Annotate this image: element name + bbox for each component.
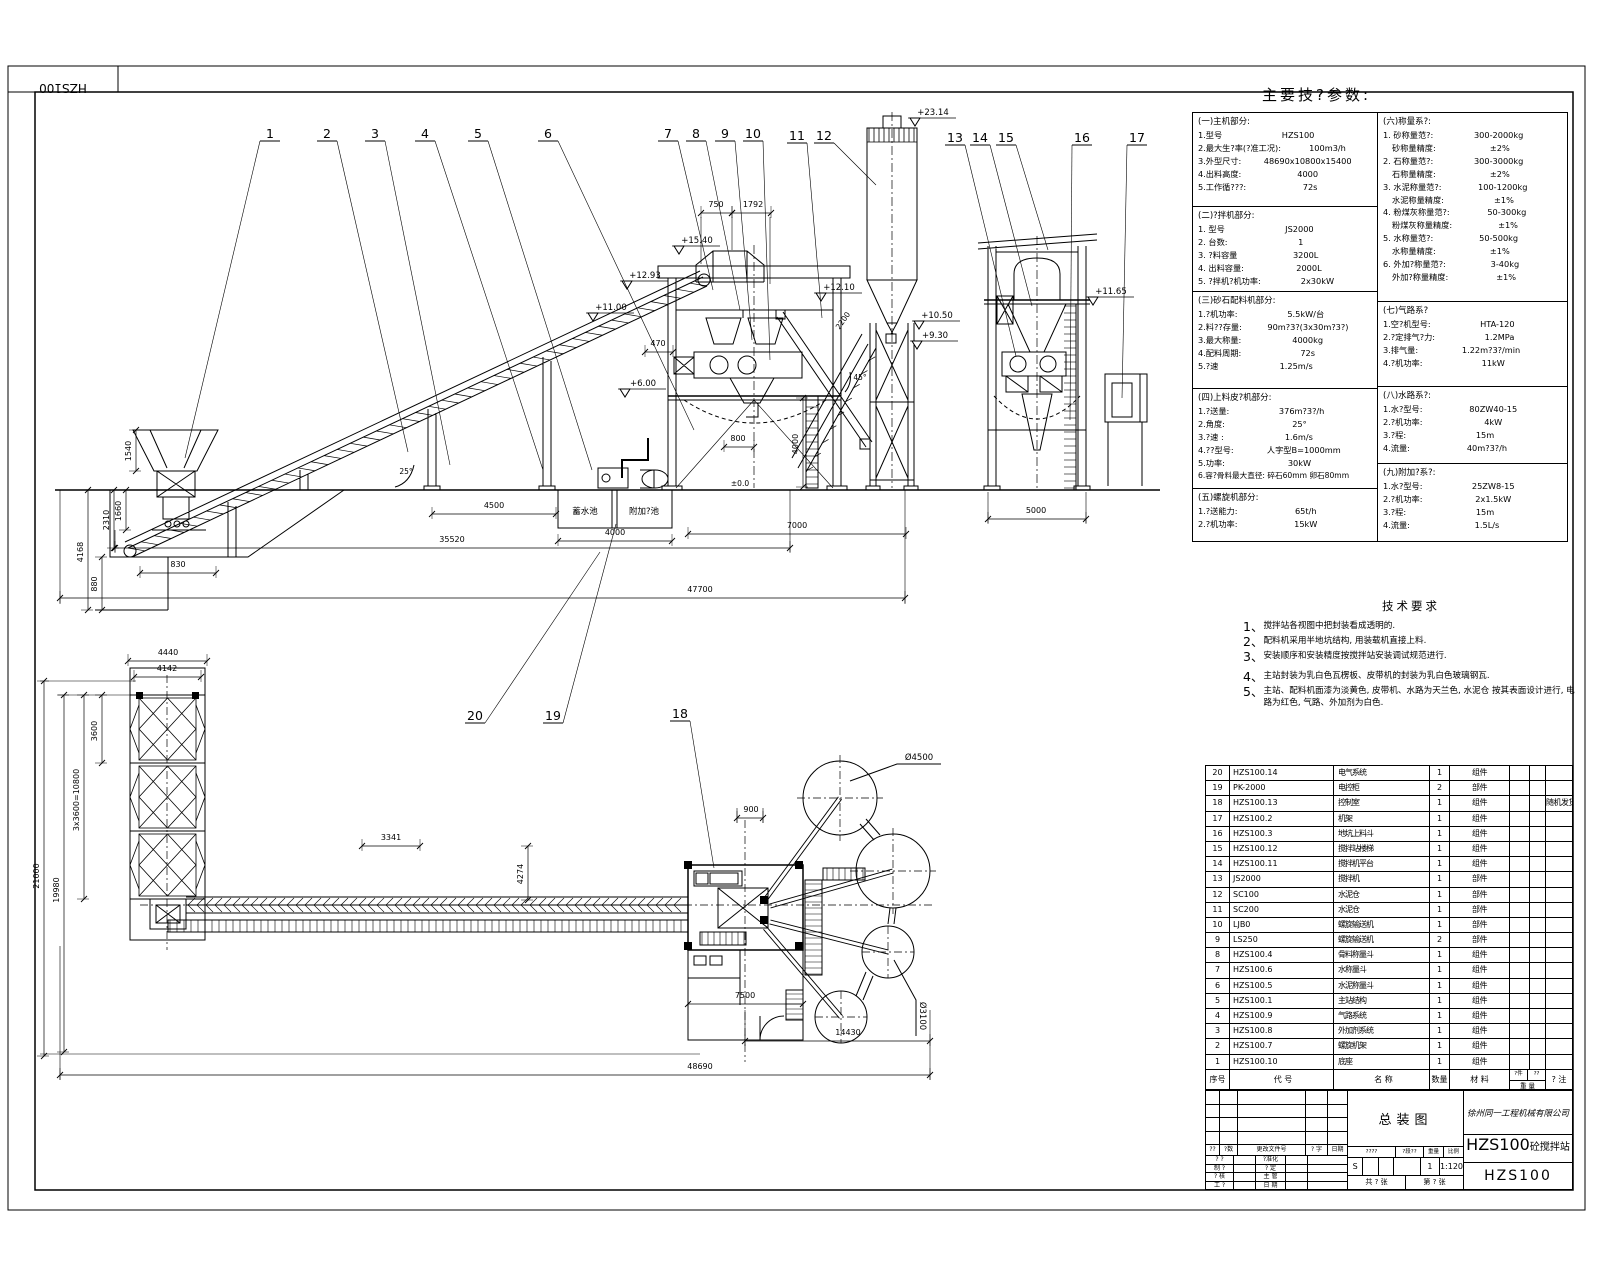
param-value: 65t/h [1237, 505, 1374, 518]
param-value: 100-1200kg [1441, 181, 1564, 194]
bom-cell-code: HZS100.3 [1230, 827, 1334, 841]
param-value: 15m [1406, 506, 1564, 519]
svg-text:4142: 4142 [157, 664, 177, 673]
bom-cell-code: HZS100.14 [1230, 766, 1334, 780]
param-label: 3. ?料容量 [1198, 249, 1237, 262]
tech-note-number: 5、 [1243, 686, 1263, 709]
elevation-mark: +9.30 [910, 331, 958, 349]
bom-cell-qty: 1 [1430, 857, 1450, 871]
bom-cell-mat: 组件 [1450, 842, 1510, 856]
bom-cell-mat: 组件 [1450, 857, 1510, 871]
bom-cell-rem [1546, 963, 1572, 977]
param-section-header: (八)水路系?: [1383, 390, 1564, 403]
svg-text:7: 7 [664, 126, 672, 141]
tech-note-item: 4、主站封装为乳白色瓦楞板、皮带机的封装为乳白色玻璃钢瓦. [1243, 671, 1579, 683]
stage-header-row: ?????段??重量比例 [1348, 1147, 1463, 1158]
bom-cell-name: 地坑上料斗 [1334, 827, 1430, 841]
tech-requirements-list: 1、搅拌站各视图中把封装看成透明的.2、配料机采用半地坑结构, 用装载机直接上料… [1243, 621, 1579, 709]
param-row: 水泥称量精度:±1% [1383, 194, 1564, 207]
bom-cell-rem [1546, 1055, 1572, 1069]
bom-cell-name: 骨料称量斗 [1334, 948, 1430, 962]
bom-cell-mat: 组件 [1450, 812, 1510, 826]
bom-cell-name: 气路系统 [1334, 1009, 1430, 1023]
svg-text:12: 12 [816, 128, 832, 143]
svg-text:+11.65: +11.65 [1095, 287, 1126, 297]
param-section: (九)附加?系?:1.水?型号:25ZW8-152.?机功率:2x1.5kW3.… [1378, 463, 1567, 543]
revision-strip: ???数更改文件号? 字日期 [1206, 1145, 1347, 1156]
param-value: 11kW [1422, 357, 1564, 370]
param-value: 4kW [1422, 416, 1564, 429]
dimension: 3341 [359, 833, 423, 851]
sheet-total: 共 ? 张 [1348, 1176, 1406, 1189]
bom-cell-rem [1546, 979, 1572, 993]
param-row: 3.?速 :1.6m/s [1198, 431, 1374, 444]
dimension: 4500 [429, 501, 559, 519]
param-row: 2. 石称量范?:300-3000kg [1383, 155, 1564, 168]
param-section: (一)主机部分:1.型号HZS1002.最大生?率(?准工况):100m3/h3… [1193, 113, 1377, 206]
bom-cell-no: 12 [1206, 888, 1230, 902]
param-label: 3.?程: [1383, 506, 1406, 519]
bom-cell-mat: 部件 [1450, 872, 1510, 886]
param-label: 2.?机功率: [1198, 518, 1237, 531]
param-value: 100m3/h [1281, 142, 1374, 155]
param-section: (六)称量系?:1. 砂称量范?:300-2000kg砂称量精度:±2%2. 石… [1378, 113, 1567, 301]
param-row: 6.容?骨料最大直径: 碎石60mm 卵石80mm [1198, 470, 1374, 483]
param-label: 5.工作循???: [1198, 181, 1246, 194]
bom-cell-w1 [1510, 842, 1530, 856]
param-label: 4.流量: [1383, 442, 1410, 455]
bom-cell-mat: 组件 [1450, 827, 1510, 841]
bom-cell-rem [1546, 888, 1572, 902]
balloon-17: 17 [1122, 130, 1147, 398]
bom-cell-name: 水泥称量斗 [1334, 979, 1430, 993]
svg-text:+12.10: +12.10 [823, 283, 854, 293]
bom-cell-qty: 1 [1430, 872, 1450, 886]
bom-cell-code: HZS100.8 [1230, 1024, 1334, 1038]
tech-note-item: 3、安装顺序和安装精度按搅拌站安装调试规范进行. [1243, 651, 1579, 663]
sheet-count-row: 共 ? 张 第 ? 张 [1348, 1176, 1463, 1189]
dimension: 7000 [685, 521, 909, 539]
bom-cell-rem [1546, 933, 1572, 947]
elevation-mark: +11.65 [1086, 287, 1134, 305]
bom-row: 9LS250螺旋输送机2部件 [1206, 933, 1572, 948]
bom-cell-w2 [1530, 979, 1546, 993]
balloon-15: 15 [996, 130, 1048, 250]
param-value: 1.22m?3?/min [1418, 344, 1564, 357]
param-section-header: (七)气路系? [1383, 305, 1564, 318]
bom-cell-rem [1546, 903, 1572, 917]
param-label: 4.配料周期: [1198, 347, 1241, 360]
bom-header-code: 代 号 [1230, 1070, 1334, 1091]
tech-note-number: 4、 [1243, 671, 1263, 683]
drawing-label: 2200 [834, 310, 852, 331]
param-row: 1.水?型号:80ZW40-15 [1383, 403, 1564, 416]
param-value: 300-3000kg [1433, 155, 1564, 168]
bom-cell-name: 底座 [1334, 1055, 1430, 1069]
param-value: 3200L [1237, 249, 1374, 262]
svg-text:7000: 7000 [787, 521, 807, 530]
dimension: 4274 [516, 843, 533, 903]
dimension: 5000 [985, 506, 1089, 524]
balloon-20: 20 [465, 552, 600, 723]
bom-cell-name: 搅拌机 [1334, 872, 1430, 886]
bom-cell-rem [1546, 827, 1572, 841]
tech-note-item: 1、搅拌站各视图中把封装看成透明的. [1243, 621, 1579, 633]
bom-cell-qty: 1 [1430, 1055, 1450, 1069]
signature-rows: ? ??准化制 ?? 定? 核主 管工 ?日 期 [1206, 1156, 1347, 1189]
bom-header-weight: ?件?? 重 量 [1510, 1070, 1546, 1091]
bom-cell-w2 [1530, 781, 1546, 795]
svg-text:800: 800 [730, 434, 745, 443]
bom-cell-qty: 1 [1430, 994, 1450, 1008]
bom-cell-w2 [1530, 888, 1546, 902]
param-row: 1.型号HZS100 [1198, 129, 1374, 142]
bom-header-no: 序号 [1206, 1070, 1230, 1091]
bom-cell-w2 [1530, 994, 1546, 1008]
bom-cell-w1 [1510, 781, 1530, 795]
svg-text:10: 10 [745, 126, 761, 141]
bom-cell-no: 17 [1206, 812, 1230, 826]
plan-view [40, 668, 941, 1080]
drawing-code: HZS100 [1464, 1163, 1572, 1189]
svg-text:19: 19 [545, 708, 561, 723]
bom-cell-code: HZS100.5 [1230, 979, 1334, 993]
bom-row: 20HZS100.14电气系统1组件 [1206, 766, 1572, 781]
bom-cell-w1 [1510, 1009, 1530, 1023]
bom-cell-name: 螺旋输送机 [1334, 918, 1430, 932]
param-row: 4.配料周期:72s [1198, 347, 1374, 360]
bom-cell-no: 15 [1206, 842, 1230, 856]
bom-cell-w1 [1510, 994, 1530, 1008]
tech-note-number: 2、 [1243, 636, 1263, 648]
param-row: 2.?机功率:2x1.5kW [1383, 493, 1564, 506]
param-section-header: (四)上料皮?机部分: [1198, 392, 1374, 405]
bom-row: 13JS2000搅拌机1部件 [1206, 872, 1572, 887]
bom-cell-no: 19 [1206, 781, 1230, 795]
svg-text:+15.40: +15.40 [681, 236, 712, 246]
param-row: 4. 出料容量:2000L [1198, 262, 1374, 275]
bom-cell-rem [1546, 842, 1572, 856]
param-label: 水称量精度: [1383, 245, 1436, 258]
svg-text:+10.50: +10.50 [921, 311, 952, 321]
tech-note-text: 主站封装为乳白色瓦楞板、皮带机的封装为乳白色玻璃钢瓦. [1263, 671, 1579, 683]
bom-cell-code: HZS100.9 [1230, 1009, 1334, 1023]
param-label: 2.最大生?率(?准工况): [1198, 142, 1281, 155]
bom-cell-mat: 组件 [1450, 979, 1510, 993]
bom-cell-w1 [1510, 1039, 1530, 1053]
param-row: 4.?机功率:11kW [1383, 357, 1564, 370]
param-label: 1.水?型号: [1383, 403, 1422, 416]
svg-text:16: 16 [1074, 130, 1090, 145]
elevation-mark: +10.50 [912, 311, 960, 329]
bom-cell-name: 主站结构 [1334, 994, 1430, 1008]
svg-text:35520: 35520 [439, 535, 464, 544]
param-value: 25° [1225, 418, 1374, 431]
svg-text:14430: 14430 [835, 1028, 860, 1037]
svg-text:3341: 3341 [381, 833, 401, 842]
param-row: 1.水?型号:25ZW8-15 [1383, 480, 1564, 493]
product-name-code: HZS100 [1466, 1135, 1530, 1154]
param-value: 90m?3?(3x30m?3?) [1242, 321, 1374, 334]
param-label: 粉煤灰称量精度: [1383, 219, 1452, 232]
param-label: 2.角度: [1198, 418, 1225, 431]
bom-cell-name: 机架 [1334, 812, 1430, 826]
param-label: 5. 水称量范?: [1383, 232, 1433, 245]
param-label: 5. ?拌机?机功率: [1198, 275, 1261, 288]
bom-cell-no: 13 [1206, 872, 1230, 886]
bom-cell-qty: 1 [1430, 842, 1450, 856]
balloon-1: 1 [185, 126, 280, 458]
dimension: 4000 [791, 395, 808, 490]
bom-cell-qty: 2 [1430, 781, 1450, 795]
elevation-mark: +6.00 [618, 379, 666, 397]
param-label: 3. 水泥称量范?: [1383, 181, 1441, 194]
bom-cell-no: 14 [1206, 857, 1230, 871]
svg-text:1660: 1660 [114, 501, 123, 521]
svg-text:4: 4 [421, 126, 429, 141]
title-block-revision-area: ???数更改文件号? 字日期 ? ??准化制 ?? 定? 核主 管工 ?日 期 [1206, 1091, 1348, 1189]
annotations: HZS1004770035520830880416823101660154045… [32, 81, 1147, 1080]
param-label: 1.?机功率: [1198, 308, 1237, 321]
bom-cell-w2 [1530, 827, 1546, 841]
param-label: 1.?送能力: [1198, 505, 1237, 518]
bom-cell-rem [1546, 766, 1572, 780]
param-row: 3. ?料容量3200L [1198, 249, 1374, 262]
bom-cell-w2 [1530, 812, 1546, 826]
param-value: 5.5kW/台 [1237, 308, 1374, 321]
param-label: 2.?机功率: [1383, 493, 1422, 506]
bom-cell-mat: 部件 [1450, 933, 1510, 947]
bom-cell-w2 [1530, 903, 1546, 917]
bom-cell-rem: 随机发货 [1546, 796, 1572, 810]
bom-cell-w1 [1510, 963, 1530, 977]
drawing-label: ±0.0 [731, 479, 749, 488]
balloon-19: 19 [543, 524, 616, 723]
param-value: ±1% [1444, 194, 1564, 207]
param-value: 50-300kg [1450, 206, 1564, 219]
param-value: 30kW [1225, 457, 1374, 470]
bom-cell-rem [1546, 994, 1572, 1008]
corner-code: HZS100 [39, 81, 87, 95]
bom-cell-code: JS2000 [1230, 872, 1334, 886]
param-value: 40m?3?/h [1410, 442, 1564, 455]
bom-row: 17HZS100.2机架1组件 [1206, 812, 1572, 827]
balloon-16: 16 [1070, 130, 1092, 420]
bom-cell-w1 [1510, 979, 1530, 993]
bom-cell-name: 外加剂系统 [1334, 1024, 1430, 1038]
bom-cell-mat: 部件 [1450, 918, 1510, 932]
bom-cell-name: 控制室 [1334, 796, 1430, 810]
bom-cell-w1 [1510, 796, 1530, 810]
bom-row: 18HZS100.13控制室1组件随机发货 [1206, 796, 1572, 811]
bom-header-remark: ? 注 [1546, 1070, 1572, 1091]
bom-cell-qty: 1 [1430, 827, 1450, 841]
dimension: 4168 [76, 487, 93, 613]
param-section-header: (五)螺旋机部分: [1198, 492, 1374, 505]
balloon-4: 4 [415, 126, 543, 470]
stage-box-2 [1363, 1158, 1378, 1175]
svg-text:47700: 47700 [687, 585, 712, 594]
bom-cell-qty: 1 [1430, 796, 1450, 810]
drawing-title: 总装图 [1348, 1091, 1463, 1147]
bom-cell-qty: 2 [1430, 933, 1450, 947]
bom-cell-no: 10 [1206, 918, 1230, 932]
param-row: 2.?机功率:4kW [1383, 416, 1564, 429]
svg-text:1: 1 [266, 126, 274, 141]
bom-cell-code: PK-2000 [1230, 781, 1334, 795]
svg-text:1792: 1792 [743, 200, 763, 209]
param-value: 300-2000kg [1433, 129, 1564, 142]
bom-cell-code: HZS100.2 [1230, 812, 1334, 826]
company-name: 徐州同一工程机械有限公司 [1464, 1091, 1572, 1135]
tech-requirements: 技术要求 1、搅拌站各视图中把封装看成透明的.2、配料机采用半地坑结构, 用装载… [1243, 598, 1579, 709]
bom-cell-no: 16 [1206, 827, 1230, 841]
param-value: 1.6m/s [1224, 431, 1374, 444]
bom-cell-no: 5 [1206, 994, 1230, 1008]
bom-cell-mat: 组件 [1450, 948, 1510, 962]
bom-cell-no: 6 [1206, 979, 1230, 993]
param-value: 50-500kg [1433, 232, 1564, 245]
bom-header-row: 序号 代 号 名 称 数量 材 料 ?件?? 重 量 ? 注 [1206, 1070, 1572, 1091]
bom-cell-rem [1546, 948, 1572, 962]
param-value: 48690x10800x15400 [1241, 155, 1374, 168]
param-value: ±2% [1436, 168, 1564, 181]
param-row: 1.空?机型号:HTA-120 [1383, 318, 1564, 331]
param-value: 2x30kW [1261, 275, 1374, 288]
param-row: 2.最大生?率(?准工况):100m3/h [1198, 142, 1374, 155]
product-name: HZS100 砼搅拌站 [1464, 1135, 1572, 1163]
sheet-number: 第 ? 张 [1406, 1176, 1463, 1189]
param-row: 1.?送能力:65t/h [1198, 505, 1374, 518]
bom-cell-w1 [1510, 1055, 1530, 1069]
param-value: 1.25m/s [1218, 360, 1374, 373]
svg-text:19980: 19980 [52, 877, 61, 902]
param-section: (七)气路系?1.空?机型号:HTA-1202.?定排气?力:1.2MPa3.排… [1378, 301, 1567, 386]
bom-cell-qty: 1 [1430, 1009, 1450, 1023]
param-label: 2. 石称量范?: [1383, 155, 1433, 168]
balloon-18: 18 [670, 706, 714, 868]
param-row: 6. 外加?称量范?:3-40kg [1383, 258, 1564, 271]
param-value: 4000kg [1241, 334, 1374, 347]
balloon-7: 7 [658, 126, 713, 290]
bom-cell-code: HZS100.7 [1230, 1039, 1334, 1053]
bom-cell-qty: 1 [1430, 918, 1450, 932]
svg-text:470: 470 [650, 339, 665, 348]
param-row: 5.?速1.25m/s [1198, 360, 1374, 373]
param-row: 5. 水称量范?:50-500kg [1383, 232, 1564, 245]
param-row: 3.?程:15m [1383, 506, 1564, 519]
title-block-middle: 总装图 ?????段??重量比例 S 1 1:120 共 ? 张 第 ? 张 [1348, 1091, 1464, 1189]
svg-text:8: 8 [692, 126, 700, 141]
param-row: 2.?定排气?力:1.2MPa [1383, 331, 1564, 344]
title-block-right: 徐州同一工程机械有限公司 HZS100 砼搅拌站 HZS100 [1464, 1091, 1572, 1189]
svg-text:2: 2 [323, 126, 331, 141]
param-row: 4.出料高度:4000 [1198, 168, 1374, 181]
bom-cell-rem [1546, 812, 1572, 826]
scale-value: 1:120 [1440, 1158, 1463, 1175]
param-row: 4.??型号:人字型B=1000mm [1198, 444, 1374, 457]
param-section-header: (一)主机部分: [1198, 116, 1374, 129]
bom-cell-w1 [1510, 903, 1530, 917]
bom-cell-rem [1546, 1009, 1572, 1023]
param-label: 4.流量: [1383, 519, 1410, 532]
bom-cell-name: 水称量斗 [1334, 963, 1430, 977]
svg-text:+23.14: +23.14 [917, 108, 948, 118]
svg-text:7500: 7500 [735, 991, 755, 1000]
dimension: 4000 [555, 528, 675, 546]
bom-row: 15HZS100.12搅拌站楼梯1组件 [1206, 842, 1572, 857]
bom-cell-qty: 1 [1430, 1024, 1450, 1038]
bom-cell-code: SC100 [1230, 888, 1334, 902]
parameters-table: (一)主机部分:1.型号HZS1002.最大生?率(?准工况):100m3/h3… [1192, 112, 1568, 542]
param-label: 3.排气量: [1383, 344, 1418, 357]
bom-cell-qty: 1 [1430, 766, 1450, 780]
param-value: 2x1.5kW [1422, 493, 1564, 506]
param-value: 15m [1406, 429, 1564, 442]
dimension: 48690 [57, 1062, 933, 1080]
param-row: 石称量精度:±2% [1383, 168, 1564, 181]
param-label: 5.功率: [1198, 457, 1225, 470]
revision-grid [1206, 1091, 1347, 1145]
bom-cell-w1 [1510, 857, 1530, 871]
svg-text:4000: 4000 [791, 434, 800, 454]
bom-cell-w2 [1530, 1024, 1546, 1038]
bom-cell-code: HZS100.11 [1230, 857, 1334, 871]
bom-cell-rem [1546, 781, 1572, 795]
bom-cell-code: HZS100.13 [1230, 796, 1334, 810]
bom-cell-w1 [1510, 827, 1530, 841]
dimension: 47700 [57, 585, 908, 603]
param-value: HZS100 [1222, 129, 1374, 142]
param-label: 4.出料高度: [1198, 168, 1241, 181]
tech-note-item: 5、主站、配料机面漆为淡黄色, 皮带机、水路为天兰色, 水泥仓 按其表面设计进行… [1243, 686, 1579, 709]
param-value: 72s [1246, 181, 1374, 194]
tech-note-text: 主站、配料机面漆为淡黄色, 皮带机、水路为天兰色, 水泥仓 按其表面设计进行, … [1263, 686, 1579, 709]
bom-header-weight-total: ?? [1528, 1070, 1545, 1080]
svg-text:+12.93: +12.93 [629, 271, 660, 281]
param-row: 1. 型号JS2000 [1198, 223, 1374, 236]
bom-cell-w2 [1530, 842, 1546, 856]
dimension: 14430 [742, 1028, 933, 1046]
bom-cell-no: 4 [1206, 1009, 1230, 1023]
param-section-header: (九)附加?系?: [1383, 467, 1564, 480]
tech-note-text: 安装顺序和安装精度按搅拌站安装调试规范进行. [1263, 651, 1579, 663]
bom-cell-no: 11 [1206, 903, 1230, 917]
param-row: 4.流量:1.5L/s [1383, 519, 1564, 532]
bom-cell-code: LS250 [1230, 933, 1334, 947]
param-section: (四)上料皮?机部分:1.?送量:376m?3?/h2.角度:25°3.?速 :… [1193, 388, 1377, 488]
bom-row: 3HZS100.8外加剂系统1组件 [1206, 1024, 1572, 1039]
dimension: 3600 [90, 692, 107, 766]
param-value: 1 [1228, 236, 1374, 249]
bom-row: 11SC200水泥仓1部件 [1206, 903, 1572, 918]
param-section-header: (六)称量系?: [1383, 116, 1564, 129]
bom-cell-w2 [1530, 963, 1546, 977]
bom-row: 4HZS100.9气路系统1组件 [1206, 1009, 1572, 1024]
svg-text:830: 830 [170, 560, 185, 569]
param-row: 3.最大称量:4000kg [1198, 334, 1374, 347]
svg-text:48690: 48690 [687, 1062, 712, 1071]
bom-cell-qty: 1 [1430, 963, 1450, 977]
param-row: 3.外型尺寸:48690x10800x15400 [1198, 155, 1374, 168]
dimension: 35520 [112, 535, 793, 553]
svg-text:880: 880 [90, 576, 99, 591]
svg-text:1540: 1540 [124, 441, 133, 461]
param-section-header: (三)砂石配料机部分: [1198, 295, 1374, 308]
balloon-9: 9 [715, 126, 752, 340]
bom-cell-mat: 组件 [1450, 994, 1510, 1008]
tech-note-item: 2、配料机采用半地坑结构, 用装载机直接上料. [1243, 636, 1579, 648]
